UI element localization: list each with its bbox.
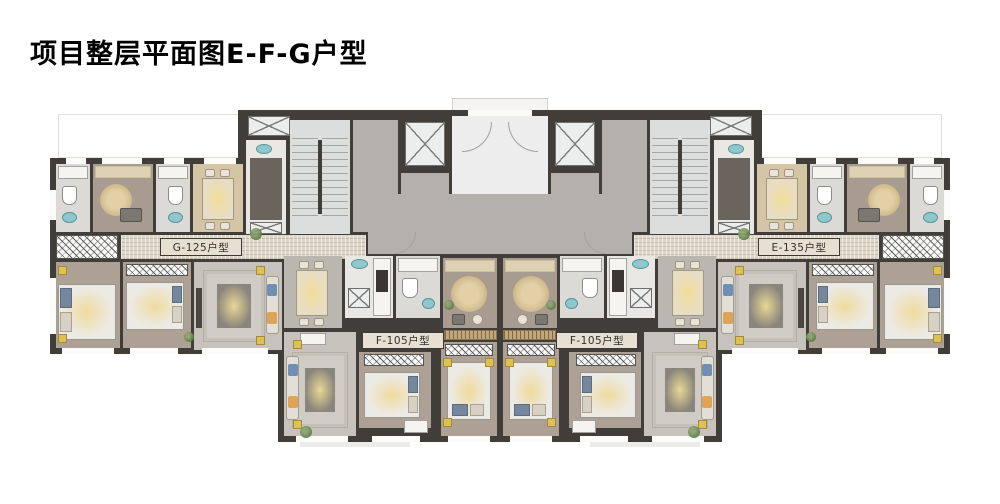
balcony-ledge-left [300,442,410,447]
f1-study-round-rug [451,276,487,312]
unit-label-f105-left: F-105户型 [362,332,444,349]
unit-label-f105-right: F-105户型 [556,332,638,349]
f1-bath-toilet-icon [402,278,418,298]
f2-bedroom-mid-pillow [582,376,592,393]
f1-bedroom-center-lamp-3 [443,418,452,427]
stair-right-treads [652,138,678,216]
f1-study-desk [445,260,495,272]
f1-bedroom-mid-pillow-2 [408,396,418,413]
f1-bedroom-mid-wardrobe [364,354,424,366]
f1-dining-chair-2 [314,261,324,269]
f1-dining-chair-1 [299,261,309,269]
window [764,158,796,164]
e-bath-2-radiator [812,166,842,179]
f1-bedroom-mid-cabinet [404,420,428,433]
e-dining-chair-2 [784,169,794,177]
plant-icon [546,300,556,310]
window [914,158,934,164]
f1-bedroom-center-wardrobe [445,344,493,356]
f2-living-rug-center [665,368,695,412]
g-bedroom-1-lamp [58,266,67,275]
elevator-left-icon [405,122,445,166]
stair-left-divider [318,140,322,214]
e-bedroom-1-lamp [933,266,942,275]
e-closet-wardrobe [882,235,944,259]
g-bath-1-sink-icon [62,212,77,223]
f1-study-stool [472,314,483,325]
unit-label-f105-right-text: F-105户型 [570,333,624,348]
g-study-sofa [120,208,142,222]
g-bath-1-radiator [58,166,88,179]
g-living-cushion-orange [267,312,277,324]
f2-bedroom-center-pillow-2 [532,404,546,416]
plant-icon [738,228,750,240]
f1-living-sideboard [300,333,326,345]
window [50,278,56,334]
g-bath-2-toilet-icon [168,186,183,205]
f1-balcony-bench [444,330,497,340]
e-living-cushion-blue [723,284,733,296]
g-bath-1-toilet-icon [62,186,77,205]
stair-left-treads-b [322,138,348,216]
f2-bath-sink-icon [565,298,578,309]
e-living-cushion-orange [723,312,733,324]
f2-bedroom-center-lamp-3 [547,418,556,427]
f2-bedroom-mid-pillow-2 [582,396,592,413]
unit-label-g125-text: G-125户型 [173,240,229,255]
g-bedroom-1-pillow-2 [60,312,72,332]
e-bath-1-toilet-icon [923,186,938,205]
e-bath-2-sink-icon [817,212,832,223]
plant-icon [300,426,312,438]
floorplan-page: 项目整层平面图E-F-G户型 [0,0,1000,504]
f2-bedroom-center-wardrobe [507,344,555,356]
f2-study-round-rug [513,276,549,312]
window [732,348,798,354]
window [944,278,950,334]
f1-bedroom-center-pillow [452,404,468,416]
f1-living-cushion-orange [288,396,298,408]
window [886,348,938,354]
stair-right-treads-b [682,138,708,216]
e-dining-table [766,178,798,220]
floorplan-canvas: G-125户型 E-135户型 F-105户型 F-105户型 [0,0,1000,504]
f2-study-chair [535,314,548,325]
g-bedroom-2-wardrobe [126,264,188,276]
f1-bath-sink-icon [422,298,435,309]
f1-kitchen-stove-icon [376,270,388,292]
g-dining-chair-2 [220,169,230,177]
e-bath-1-sink-icon [923,212,938,223]
f2-bath-counter [562,258,602,272]
f2-dining-chair-4 [690,318,700,326]
corridor [353,194,647,232]
unit-label-f105-left-text: F-105户型 [376,333,430,348]
g-living-cushion-blue [267,284,277,296]
kitchen-column-right-sink-icon [728,144,744,154]
f2-living-sideboard [674,333,700,345]
f1-study-chair [452,314,465,325]
window [50,190,56,220]
window [822,348,870,354]
g-closet-wardrobe [56,235,118,259]
stair-left-treads [292,138,318,216]
f2-dining-chair-2 [690,261,700,269]
e-bedroom-2-wardrobe [812,264,874,276]
f2-balcony-bench [503,330,556,340]
g-dining-table [202,178,234,220]
window [858,158,898,164]
g-living-tv-cabinet [196,288,202,328]
plant-icon [184,332,194,342]
site-outline-right [760,114,942,158]
e-bedroom-1-lamp-2 [933,334,942,343]
kitchen-column-left-counter [250,158,282,220]
f1-bedroom-center-lamp-2 [485,358,494,367]
f1-bath-counter [398,258,438,272]
unit-label-g125: G-125户型 [160,238,242,256]
g-bedroom-2-pillow [172,286,182,303]
g-dining-chair-4 [220,222,230,230]
plant-icon [444,300,454,310]
e-dining-chair-3 [769,222,779,230]
f1-dining-chair-4 [314,318,324,326]
f2-study-stool [517,314,528,325]
g-bath-2-sink-icon [168,212,183,223]
f1-dining-table [296,270,328,316]
f2-bedroom-center-lamp [505,358,514,367]
e-bath-2-toilet-icon [817,186,832,205]
window [816,158,836,164]
ac-platform-left [248,116,290,136]
window [944,190,950,220]
e-dining-chair-1 [769,169,779,177]
g-living-lamp-2 [256,336,265,345]
f2-kitchen-island [630,288,652,308]
f1-kitchen-island [348,288,370,308]
f2-study-desk [505,260,555,272]
elevator-right-icon [555,122,595,166]
e-bedroom-2-pillow-2 [818,306,828,323]
window [510,436,552,442]
f2-living-lamp [698,340,707,349]
g-bedroom-1-pillow [60,288,72,308]
e-study-desk [849,166,905,178]
site-outline-left [58,114,240,158]
g-living-lamp [256,266,265,275]
e-living-tv-cabinet [798,288,804,328]
window [164,158,184,164]
kitchen-column-left-sink-icon [256,144,272,154]
window [66,158,86,164]
f2-bath-toilet-icon [582,278,598,298]
window [448,436,490,442]
ac-platform-right [710,116,752,136]
e-bedroom-1-pillow-2 [928,312,940,332]
plant-icon [250,228,262,240]
stair-right-divider [678,140,682,214]
g-study-desk [95,166,151,178]
f2-dining-chair-3 [675,318,685,326]
e-dining-chair-4 [784,222,794,230]
window [130,348,178,354]
g-bedroom-1-lamp-2 [58,334,67,343]
f1-kitchen-sink-icon [351,259,368,269]
f2-dining-chair-1 [675,261,685,269]
f2-living-cushion-blue [702,364,712,376]
f2-bedroom-mid-cabinet [572,420,596,433]
f2-kitchen-stove-icon [612,270,624,292]
unit-label-e135: E-135户型 [758,238,840,256]
window [468,110,532,116]
e-bedroom-2-pillow [818,286,828,303]
f2-bedroom-mid-wardrobe [576,354,636,366]
f1-living-lamp [293,340,302,349]
f1-bedroom-center-lamp [443,358,452,367]
kitchen-column-right-counter [718,158,750,220]
f1-bedroom-center-pillow-2 [470,404,484,416]
f2-dining-table [672,270,704,316]
f1-bedroom-mid-pillow [408,376,418,393]
window [204,158,236,164]
g-dining-chair-1 [205,169,215,177]
f2-living-lamp-2 [698,420,707,429]
window [62,348,114,354]
g-dining-chair-3 [205,222,215,230]
f1-living-cushion-blue [288,364,298,376]
window [202,348,268,354]
e-bath-1-radiator [912,166,942,179]
e-living-lamp [735,266,744,275]
g-bedroom-2-pillow-2 [172,306,182,323]
e-living-rug-center [749,284,783,328]
g-bath-2-radiator [158,166,188,179]
plant-icon [806,332,816,342]
e-study-sofa [858,208,880,222]
plant-icon [688,426,700,438]
e-living-lamp-2 [735,336,744,345]
f1-living-rug-center [305,368,335,412]
balcony-ledge-right [590,442,700,447]
f2-kitchen-sink-icon [632,259,649,269]
f2-bedroom-center-pillow [514,404,530,416]
f2-living-cushion-orange [702,396,712,408]
window [102,158,142,164]
f2-bedroom-center-lamp-2 [547,358,556,367]
g-living-rug-center [217,284,251,328]
e-bedroom-1-pillow [928,288,940,308]
f1-dining-chair-3 [299,318,309,326]
unit-label-e135-text: E-135户型 [772,240,827,255]
